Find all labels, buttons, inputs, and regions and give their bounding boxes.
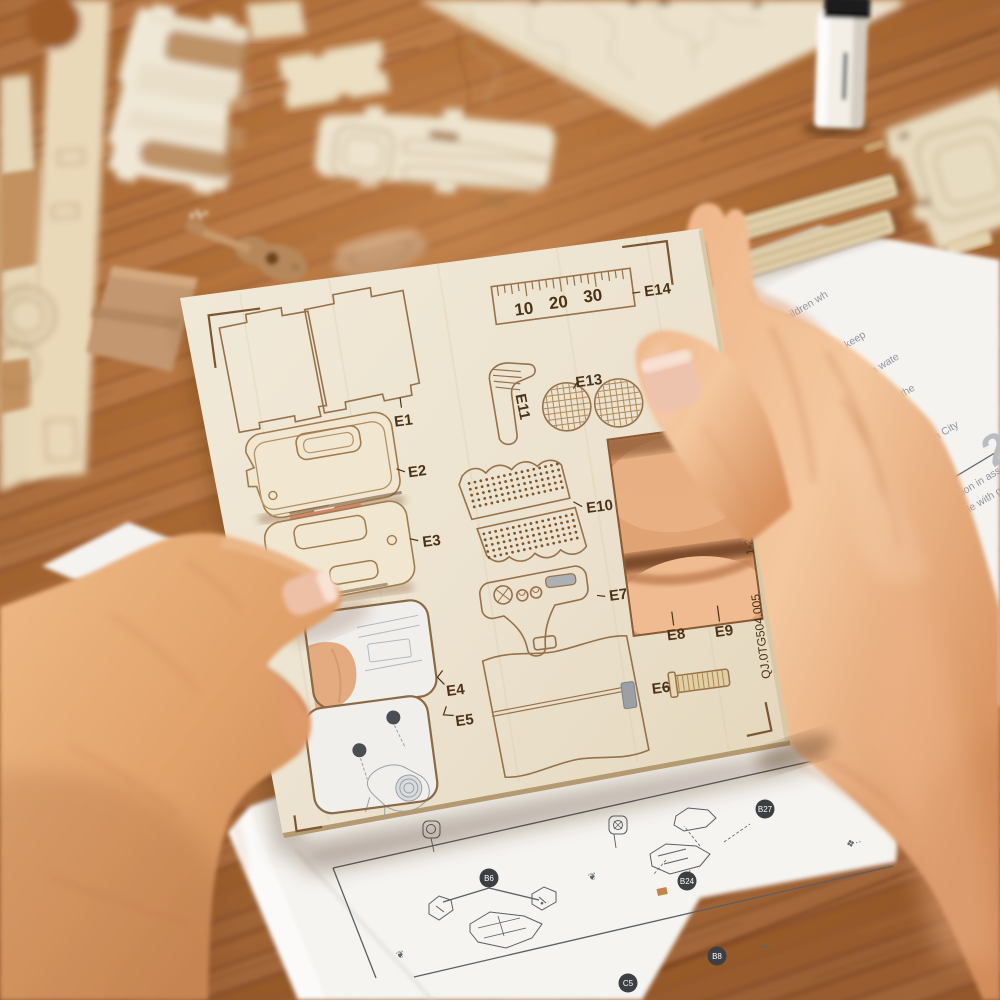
svg-text:E8: E8 xyxy=(666,625,686,644)
svg-text:E14: E14 xyxy=(643,280,672,300)
svg-text:B6: B6 xyxy=(484,874,494,883)
svg-text:10: 10 xyxy=(513,298,534,319)
svg-text:E6: E6 xyxy=(651,679,671,698)
svg-text:30: 30 xyxy=(582,285,603,306)
svg-text:E7: E7 xyxy=(608,585,628,604)
svg-text:20: 20 xyxy=(548,292,569,313)
svg-text:E1: E1 xyxy=(393,411,413,430)
svg-text:E9: E9 xyxy=(714,622,734,641)
svg-text:E2: E2 xyxy=(407,462,427,481)
svg-text:B27: B27 xyxy=(758,805,773,814)
svg-text:E13: E13 xyxy=(575,371,604,391)
svg-text:B24: B24 xyxy=(680,877,695,886)
svg-text:E10: E10 xyxy=(585,497,614,517)
svg-text:E5: E5 xyxy=(454,711,474,730)
svg-text:E3: E3 xyxy=(421,532,441,551)
svg-text:C5: C5 xyxy=(623,979,634,988)
svg-text:B8: B8 xyxy=(712,952,722,961)
svg-text:E4: E4 xyxy=(445,681,466,700)
